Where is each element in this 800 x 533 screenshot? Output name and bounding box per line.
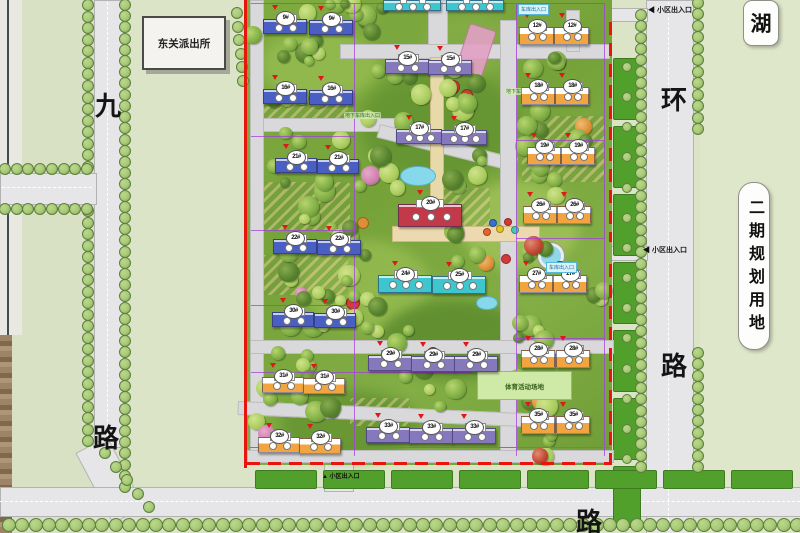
street-tree-icon	[119, 10, 131, 22]
street-tree-icon	[523, 518, 537, 532]
unit-badge	[472, 3, 480, 11]
boundary-red-left	[244, 0, 247, 468]
roof-flag-icon	[559, 73, 565, 81]
parcel-line	[604, 4, 605, 456]
building-number-29: 29#	[381, 347, 400, 362]
street-tree-icon	[119, 201, 131, 213]
street-tree-icon	[309, 518, 323, 532]
lane-line	[2, 187, 92, 188]
street-tree-icon	[119, 414, 131, 426]
street-tree-icon	[132, 488, 144, 500]
roof-flag-icon	[418, 414, 424, 422]
street-tree-icon	[119, 134, 131, 146]
building-number-33: 33#	[465, 420, 484, 435]
street-tree-icon	[635, 77, 647, 89]
street-tree-icon	[622, 424, 632, 434]
street-tree-icon	[635, 416, 647, 428]
unit-badge	[564, 93, 572, 101]
building-number-22: 22#	[330, 232, 349, 247]
street-tree-icon	[82, 138, 94, 150]
street-tree-icon	[82, 378, 94, 390]
street-tree-icon	[750, 518, 764, 532]
street-tree-icon	[119, 380, 131, 392]
unit-badge	[530, 93, 538, 101]
building-number-21: 21#	[287, 150, 306, 165]
street-tree-icon	[616, 518, 630, 532]
entrance-label: ◀ 小区出入口	[648, 5, 692, 15]
street-tree-icon	[95, 518, 109, 532]
street-tree-icon	[336, 518, 350, 532]
lane-line	[107, 2, 108, 442]
street-tree-icon	[635, 122, 647, 134]
street-tree-icon	[635, 190, 647, 202]
roof-flag-icon	[525, 402, 531, 410]
street-tree-icon	[635, 269, 647, 281]
street-tree-icon	[119, 447, 131, 459]
entrance-label: ▲ 小区出入口	[322, 471, 360, 480]
street-tree-icon	[109, 518, 123, 532]
unit-badge	[539, 33, 547, 41]
street-tree-icon	[110, 461, 122, 473]
street-tree-icon	[82, 11, 94, 23]
street-tree-icon	[189, 518, 203, 532]
street-tree-icon	[692, 370, 704, 382]
parasol-icon	[511, 226, 519, 234]
tree-icon	[361, 321, 374, 334]
roof-flag-icon	[325, 145, 331, 153]
street-tree-icon	[692, 89, 704, 101]
roof-flag-icon	[394, 45, 400, 53]
unit-badge	[402, 281, 410, 289]
parcel-line	[516, 140, 604, 141]
unit-badge	[480, 361, 488, 369]
street-tree-icon	[82, 263, 94, 275]
street-tree-icon	[635, 371, 647, 383]
street-tree-icon	[2, 518, 16, 532]
street-tree-icon	[737, 518, 751, 532]
street-tree-icon	[622, 62, 632, 72]
underground-garage-label: 地下车库出入口	[344, 112, 381, 119]
building-number-29: 29#	[467, 348, 486, 363]
building-number-26: 26#	[531, 198, 550, 213]
unit-badge	[530, 356, 538, 364]
unit-badge	[575, 422, 583, 430]
lane-line	[0, 501, 800, 502]
street-tree-icon	[550, 518, 564, 532]
tree-icon	[445, 379, 465, 399]
sports-field: 体育活动场地	[477, 371, 572, 400]
unit-badge	[472, 135, 480, 143]
street-tree-icon	[119, 391, 131, 403]
unit-badge	[562, 281, 570, 289]
street-tree-icon	[82, 332, 94, 344]
unit-badge	[540, 93, 548, 101]
street-tree-icon	[635, 450, 647, 462]
building-number-15: 15#	[441, 52, 460, 67]
street-tree-icon	[82, 34, 94, 46]
street-tree-icon	[82, 274, 94, 286]
roof-flag-icon	[392, 261, 398, 269]
street-tree-icon	[323, 518, 337, 532]
median-strip	[391, 470, 453, 489]
street-tree-icon	[82, 240, 94, 252]
street-tree-icon	[119, 403, 131, 415]
street-tree-icon	[635, 461, 647, 473]
lake-box: 湖	[743, 0, 779, 46]
unit-badge	[437, 361, 445, 369]
street-tree-icon	[635, 348, 647, 360]
parcel-line	[516, 238, 604, 239]
roof-flag-icon	[560, 402, 566, 410]
street-tree-icon	[692, 20, 704, 32]
street-tree-icon	[536, 518, 550, 532]
street-tree-icon	[635, 43, 647, 55]
street-tree-icon	[622, 364, 632, 374]
street-tree-icon	[635, 314, 647, 326]
road-bottom	[0, 487, 800, 517]
police-station-box: 东关派出所	[142, 16, 226, 70]
street-tree-icon	[82, 57, 94, 69]
street-tree-icon	[119, 178, 131, 190]
street-tree-icon	[237, 75, 249, 87]
median-strip	[663, 470, 725, 489]
tree-icon	[468, 166, 487, 185]
street-tree-icon	[231, 7, 243, 19]
street-tree-icon	[403, 518, 417, 532]
phase2-box: 二期规划用地	[738, 182, 770, 350]
street-tree-icon	[82, 297, 94, 309]
unit-badge	[565, 422, 573, 430]
unit-badge	[415, 281, 423, 289]
median-strip	[459, 470, 521, 489]
street-tree-icon	[635, 88, 647, 100]
road-name-jiu: 九	[95, 86, 121, 123]
tree-icon	[390, 180, 406, 196]
street-tree-icon	[119, 66, 131, 78]
street-tree-icon	[510, 518, 524, 532]
unit-badge	[456, 282, 464, 290]
police-station-label: 东关派出所	[158, 36, 211, 51]
tree-icon	[354, 180, 366, 192]
tree-icon	[451, 255, 464, 268]
lake-label: 湖	[751, 8, 772, 38]
street-tree-icon	[635, 224, 647, 236]
street-tree-icon	[46, 203, 58, 215]
street-tree-icon	[603, 518, 617, 532]
street-tree-icon	[496, 518, 510, 532]
tree-icon	[442, 169, 463, 190]
street-tree-icon	[42, 518, 56, 532]
unit-badge	[389, 281, 397, 289]
street-tree-icon	[622, 183, 632, 193]
street-tree-icon	[81, 163, 93, 175]
building-number-33: 33#	[379, 419, 398, 434]
street-tree-icon	[121, 474, 133, 486]
street-tree-icon	[443, 518, 457, 532]
roof-flag-icon	[406, 115, 412, 123]
unit-badge	[540, 422, 548, 430]
parasol-icon	[501, 254, 511, 264]
building-number-16: 16#	[276, 81, 295, 96]
unit-badge	[395, 3, 403, 11]
unit-badge	[450, 135, 458, 143]
roof-flag-icon	[322, 299, 328, 307]
street-tree-icon	[119, 33, 131, 45]
roof-flag-icon	[270, 363, 276, 371]
street-tree-icon	[622, 213, 632, 223]
street-tree-icon	[202, 518, 216, 532]
unit-badge	[580, 153, 588, 161]
street-tree-icon	[635, 66, 647, 78]
unit-badge	[576, 212, 584, 220]
unit-badge	[574, 93, 582, 101]
street-tree-icon	[82, 286, 94, 298]
building-number-15: 15#	[398, 51, 417, 66]
building-number-22: 22#	[286, 231, 305, 246]
unit-badge	[324, 443, 332, 451]
street-tree-icon	[119, 145, 131, 157]
unit-badge	[570, 153, 578, 161]
street-tree-icon	[11, 203, 23, 215]
roof-flag-icon	[463, 342, 469, 350]
median-strip	[255, 470, 317, 489]
roof-flag-icon	[523, 261, 529, 269]
boundary-red-bottom	[247, 462, 612, 465]
building-number-12: 12#	[563, 19, 582, 34]
street-tree-icon	[119, 302, 131, 314]
roof-flag-icon	[266, 423, 272, 431]
roof-flag-icon	[559, 13, 565, 21]
roof-flag-icon	[272, 5, 278, 13]
street-tree-icon	[82, 401, 94, 413]
street-tree-icon	[82, 217, 94, 229]
street-tree-icon	[119, 246, 131, 258]
building-number-9: 9#	[276, 11, 295, 26]
unit-badge	[392, 432, 400, 440]
street-tree-icon	[635, 382, 647, 394]
street-tree-icon	[82, 366, 94, 378]
street-tree-icon	[119, 122, 131, 134]
building-number-33: 33#	[422, 420, 441, 435]
street-tree-icon	[635, 427, 647, 439]
sports-field-label: 体育活动场地	[505, 381, 544, 391]
unit-badge	[394, 360, 402, 368]
street-tree-icon	[82, 343, 94, 355]
unit-badge	[435, 433, 443, 441]
building-number-9: 9#	[322, 12, 341, 27]
building-number-19: 19#	[569, 139, 588, 154]
street-tree-icon	[119, 234, 131, 246]
street-tree-icon	[643, 518, 657, 532]
tree-icon	[447, 226, 464, 243]
tree-icon	[548, 52, 560, 64]
road-name-lu-left: 路	[93, 418, 119, 455]
garage-entrance-label: 车库出入口	[546, 262, 577, 273]
building-number-17: 17#	[455, 122, 474, 137]
street-tree-icon	[119, 44, 131, 56]
unit-badge	[443, 213, 451, 221]
unit-badge	[283, 442, 291, 450]
unit-badge	[405, 134, 413, 142]
building-number-35: 35#	[564, 408, 583, 423]
tree-icon	[371, 64, 385, 78]
street-tree-icon	[143, 501, 155, 513]
street-tree-icon	[149, 518, 163, 532]
boundary-red-right	[609, 22, 612, 242]
street-tree-icon	[697, 518, 711, 532]
street-tree-icon	[242, 518, 256, 532]
street-tree-icon	[777, 518, 791, 532]
unit-badge	[287, 382, 295, 390]
roof-flag-icon	[283, 144, 289, 152]
building-number-35: 35#	[529, 408, 548, 423]
tree-icon	[332, 131, 350, 149]
building-number-18: 18#	[529, 79, 548, 94]
roof-flag-icon	[525, 73, 531, 81]
parasol-icon	[357, 217, 369, 229]
street-tree-icon	[692, 123, 704, 135]
building-number-18: 18#	[563, 79, 582, 94]
street-tree-icon	[58, 163, 70, 175]
roof-flag-icon	[420, 342, 426, 350]
street-tree-icon	[630, 518, 644, 532]
street-tree-icon	[692, 404, 704, 416]
street-tree-icon	[256, 518, 270, 532]
street-tree-icon	[635, 145, 647, 157]
tree-icon	[469, 246, 486, 263]
street-tree-icon	[635, 201, 647, 213]
roof-flag-icon	[531, 133, 537, 141]
street-tree-icon	[692, 66, 704, 78]
street-tree-icon	[216, 518, 230, 532]
street-tree-icon	[119, 279, 131, 291]
unit-badge	[443, 282, 451, 290]
street-tree-icon	[710, 518, 724, 532]
building-number-31: 31#	[315, 370, 334, 385]
unit-badge	[427, 134, 435, 142]
street-tree-icon	[82, 80, 94, 92]
roof-flag-icon	[446, 262, 452, 270]
building-number-31: 31#	[274, 369, 293, 384]
tree-icon	[296, 291, 311, 306]
tree-icon	[315, 172, 333, 190]
street-tree-icon	[622, 454, 632, 464]
building-number-30: 30#	[326, 305, 345, 320]
street-tree-icon	[11, 163, 23, 175]
street-tree-icon	[483, 518, 497, 532]
building-number-32: 32#	[270, 429, 289, 444]
street-tree-icon	[349, 518, 363, 532]
building-number-28: 28#	[564, 342, 583, 357]
street-tree-icon	[683, 518, 697, 532]
unit-badge	[486, 3, 494, 11]
street-tree-icon	[136, 518, 150, 532]
road-name-lu-bottom: 路	[576, 502, 602, 533]
unit-badge	[574, 33, 582, 41]
street-tree-icon	[81, 203, 93, 215]
tree-icon	[278, 262, 298, 282]
roof-flag-icon	[461, 414, 467, 422]
roof-flag-icon	[561, 192, 567, 200]
street-tree-icon	[82, 320, 94, 332]
road-name-huan: 环	[661, 80, 687, 117]
unit-badge	[423, 3, 431, 11]
street-tree-icon	[82, 389, 94, 401]
unit-badge	[478, 433, 486, 441]
street-tree-icon	[119, 190, 131, 202]
tree-icon	[368, 297, 387, 316]
street-tree-icon	[119, 212, 131, 224]
road-name-lu-right: 路	[661, 346, 687, 383]
street-tree-icon	[229, 518, 243, 532]
street-tree-icon	[389, 518, 403, 532]
roof-flag-icon	[307, 424, 313, 432]
unit-badge	[458, 3, 466, 11]
street-tree-icon	[790, 518, 800, 532]
street-tree-icon	[119, 335, 131, 347]
street-tree-icon	[363, 518, 377, 532]
street-tree-icon	[635, 9, 647, 21]
roof-flag-icon	[326, 226, 332, 234]
roof-flag-icon	[311, 364, 317, 372]
street-tree-icon	[119, 290, 131, 302]
street-tree-icon	[82, 115, 94, 127]
street-tree-icon	[456, 518, 470, 532]
tree-icon	[283, 37, 297, 51]
roof-flag-icon	[375, 413, 381, 421]
unit-badge	[563, 33, 571, 41]
parasol-icon	[483, 228, 491, 236]
street-tree-icon	[635, 32, 647, 44]
street-tree-icon	[82, 92, 94, 104]
unit-badge	[469, 282, 477, 290]
tree-icon	[434, 401, 445, 412]
parcel-line	[251, 230, 354, 231]
unit-badge	[427, 213, 435, 221]
parasol-icon	[496, 225, 504, 233]
building-number-17: 17#	[410, 121, 429, 136]
street-tree-icon	[692, 43, 704, 55]
street-tree-icon	[296, 518, 310, 532]
street-tree-icon	[162, 518, 176, 532]
pool	[400, 166, 436, 186]
street-tree-icon	[692, 427, 704, 439]
street-tree-icon	[269, 518, 283, 532]
building	[383, 0, 441, 11]
street-tree-icon	[622, 243, 632, 253]
roof-flag-icon	[560, 336, 566, 344]
street-tree-icon	[119, 346, 131, 358]
unit-badge	[536, 153, 544, 161]
unit-badge	[546, 153, 554, 161]
unit-badge	[528, 281, 536, 289]
street-tree-icon	[469, 518, 483, 532]
unit-badge	[532, 212, 540, 220]
street-tree-icon	[692, 347, 704, 359]
street-tree-icon	[119, 436, 131, 448]
street-tree-icon	[635, 111, 647, 123]
building-number-28: 28#	[529, 342, 548, 357]
building-number-29: 29#	[424, 348, 443, 363]
unit-badge	[412, 213, 420, 221]
building-number-24: 24#	[396, 267, 415, 282]
tree-icon	[458, 94, 476, 112]
street-tree-icon	[82, 518, 96, 532]
street-tree-icon	[622, 394, 632, 404]
street-tree-icon	[635, 258, 647, 270]
street-tree-icon	[119, 324, 131, 336]
road-left-branch	[0, 173, 97, 205]
